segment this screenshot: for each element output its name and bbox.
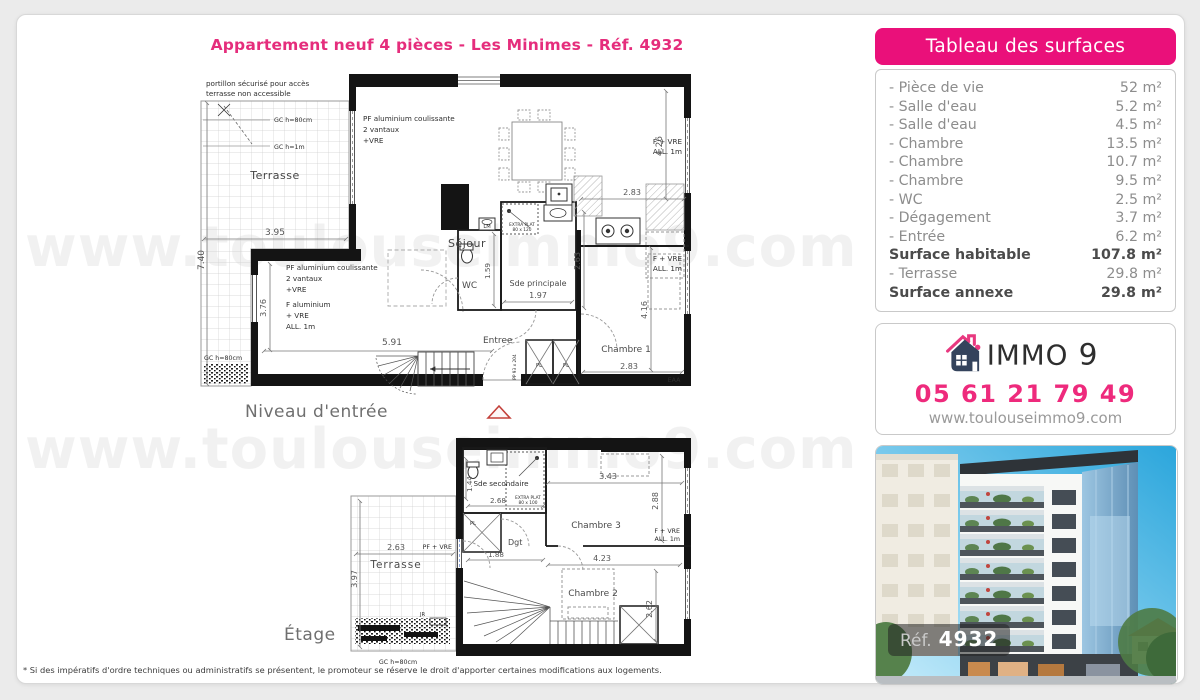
dim-283-chambre: 2.83: [620, 362, 638, 371]
floorplan-entry-svg: portillon sécurisé pour accès terrasse n…: [196, 64, 696, 424]
label-jr: JR: [419, 612, 426, 618]
staircase-entry: [376, 250, 474, 394]
room-chambre1: Chambre 1: [601, 345, 651, 355]
dim-397: 3.97: [350, 570, 359, 588]
dim-197: 1.97: [529, 291, 547, 300]
note-pf-ext-2: 2 vantaux: [286, 274, 323, 283]
dim-591: 5.91: [382, 338, 402, 348]
dim-423: 4.23: [593, 554, 611, 563]
room-dgt: Dgt: [508, 538, 522, 547]
partitions-upper: [463, 448, 691, 644]
label-pp: PP 93 x 204: [512, 354, 518, 380]
room-entree: Entree: [483, 336, 513, 346]
house-icon: [947, 336, 980, 371]
room-chambre2: Chambre 2: [568, 589, 618, 599]
room-terrasse: Terrasse: [249, 169, 299, 182]
label-pl-1: PL: [536, 363, 542, 369]
dim-159: 1.59: [483, 263, 492, 279]
page-title: Appartement neuf 4 pièces - Les Minimes …: [17, 36, 877, 54]
entrance-marker-triangle: [486, 404, 512, 424]
terrace-upper: [351, 496, 456, 651]
right-column: Tableau des surfaces - Pièce de vie52 m²…: [875, 15, 1176, 683]
label-pl-2: PL: [563, 363, 569, 369]
note-portillon-2: terrasse non accessible: [206, 89, 291, 98]
label-extraplat-size-2: 80 x 100: [519, 500, 538, 506]
note-all1m-2: ALL. 1m: [653, 264, 682, 273]
floorplan-upper-level: Sde secondaire 1.44 2.68 EXTRA PLAT 80 x…: [346, 429, 696, 669]
dim-263-terrace: 2.63: [387, 543, 405, 552]
note-fvre-3: F + VRE: [654, 528, 680, 535]
agency-website[interactable]: www.toulouseimmo9.com: [876, 409, 1175, 427]
dim-263: 2.63: [573, 252, 582, 270]
agency-panel: IMMO 9 05 61 21 79 49 www.toulouseimmo9.…: [875, 323, 1176, 435]
label-gc80-left: GC h=80cm: [204, 355, 242, 362]
note-pf-top-2: 2 vantaux: [363, 125, 400, 134]
surface-row: - Chambre13.5 m²: [889, 135, 1162, 154]
dim-740: 7.40: [197, 250, 207, 270]
surface-row-total-annexe: Surface annexe29.8 m²: [889, 284, 1162, 303]
agency-phone: 05 61 21 79 49: [876, 380, 1175, 408]
room-sde-secondaire: Sde secondaire: [473, 479, 529, 488]
label-gc80-top: GC h=80cm: [274, 117, 312, 124]
dim-416: 4.16: [640, 301, 649, 319]
disclaimer-text: * Si des impératifs d'ordre techniques o…: [23, 665, 662, 675]
immo9-logo: IMMO 9: [941, 332, 1111, 376]
surface-row: - Terrasse29.8 m²: [889, 265, 1162, 284]
note-pf-vre: PF + VRE: [423, 544, 452, 551]
surface-row: - Chambre9.5 m²: [889, 172, 1162, 191]
surfaces-panel: - Pièce de vie52 m² - Salle d'eau5.2 m² …: [875, 69, 1176, 312]
dim-268: 2.68: [490, 496, 506, 505]
reference-badge: Réf.4932: [888, 624, 1010, 656]
note-falu-1: F aluminium: [286, 300, 330, 309]
note-all1m-3: ALL. 1m: [655, 536, 680, 543]
room-wc: WC: [462, 281, 477, 291]
dim-426: 4.26: [655, 136, 665, 156]
floorplan-upper-svg: Sde secondaire 1.44 2.68 EXTRA PLAT 80 x…: [346, 429, 696, 669]
note-falu-2: + VRE: [286, 311, 309, 320]
label-gc1m: GC h=1m: [274, 144, 305, 151]
note-pf-ext-3: +VRE: [286, 285, 307, 294]
label-lm: LM: [483, 224, 490, 230]
surface-row: - Pièce de vie52 m²: [889, 79, 1162, 98]
note-portillon-1: portillon sécurisé pour accès: [206, 79, 310, 88]
note-pf-top-3: +VRE: [363, 136, 384, 145]
floorplan-entry-level: portillon sécurisé pour accès terrasse n…: [196, 64, 696, 424]
room-sde-principale: Sde principale: [509, 279, 566, 288]
label-extraplat-size-1: 80 x 120: [513, 227, 532, 233]
door-arc-upper: [463, 519, 583, 571]
surfaces-panel-header: Tableau des surfaces: [875, 28, 1176, 65]
dim-395: 3.95: [265, 228, 285, 238]
surface-row: - Salle d'eau4.5 m²: [889, 116, 1162, 135]
note-pf-ext-1: PF aluminium coulissante: [286, 263, 378, 272]
dim-343: 3.43: [599, 472, 617, 481]
dim-288: 2.88: [651, 492, 660, 510]
surface-row: - Salle d'eau5.2 m²: [889, 98, 1162, 117]
surface-row: - Entrée6.2 m²: [889, 228, 1162, 247]
dim-262: 2.62: [645, 600, 654, 618]
plan-caption-entry: Niveau d'entrée: [245, 402, 388, 422]
note-pf-top-1: PF aluminium coulissante: [363, 114, 455, 123]
dim-144: 1.44: [465, 476, 474, 492]
dim-188: 1.88: [488, 550, 504, 559]
note-falu-3: ALL. 1m: [286, 322, 315, 331]
surface-row: - WC2.5 m²: [889, 191, 1162, 210]
content-card: Appartement neuf 4 pièces - Les Minimes …: [16, 14, 1185, 684]
room-terrasse-upper: Terrasse: [369, 559, 421, 571]
surface-row-total-habitable: Surface habitable107.8 m²: [889, 246, 1162, 265]
surface-row: - Dégagement3.7 m²: [889, 209, 1162, 228]
dim-376: 3.76: [259, 299, 268, 317]
dining-table: [499, 110, 575, 192]
dim-283-kitchen: 2.83: [623, 188, 641, 197]
fixtures-upper: [467, 450, 649, 619]
building-photo: Réf.4932: [875, 445, 1178, 685]
ref-number: 4932: [939, 627, 999, 651]
surface-row: - Chambre10.7 m²: [889, 153, 1162, 172]
note-fvre-2: F + VRE: [653, 254, 683, 263]
logo-text-immo: IMMO: [986, 339, 1068, 372]
room-chambre3: Chambre 3: [571, 521, 621, 531]
logo-text-9: 9: [1078, 337, 1097, 372]
ref-label: Réf.: [900, 631, 932, 651]
label-pl-upper: PL: [470, 521, 476, 527]
room-sejour: Séjour: [448, 237, 486, 250]
plan-caption-floor: Étage: [284, 625, 336, 645]
label-eaa: EAA: [668, 377, 681, 384]
